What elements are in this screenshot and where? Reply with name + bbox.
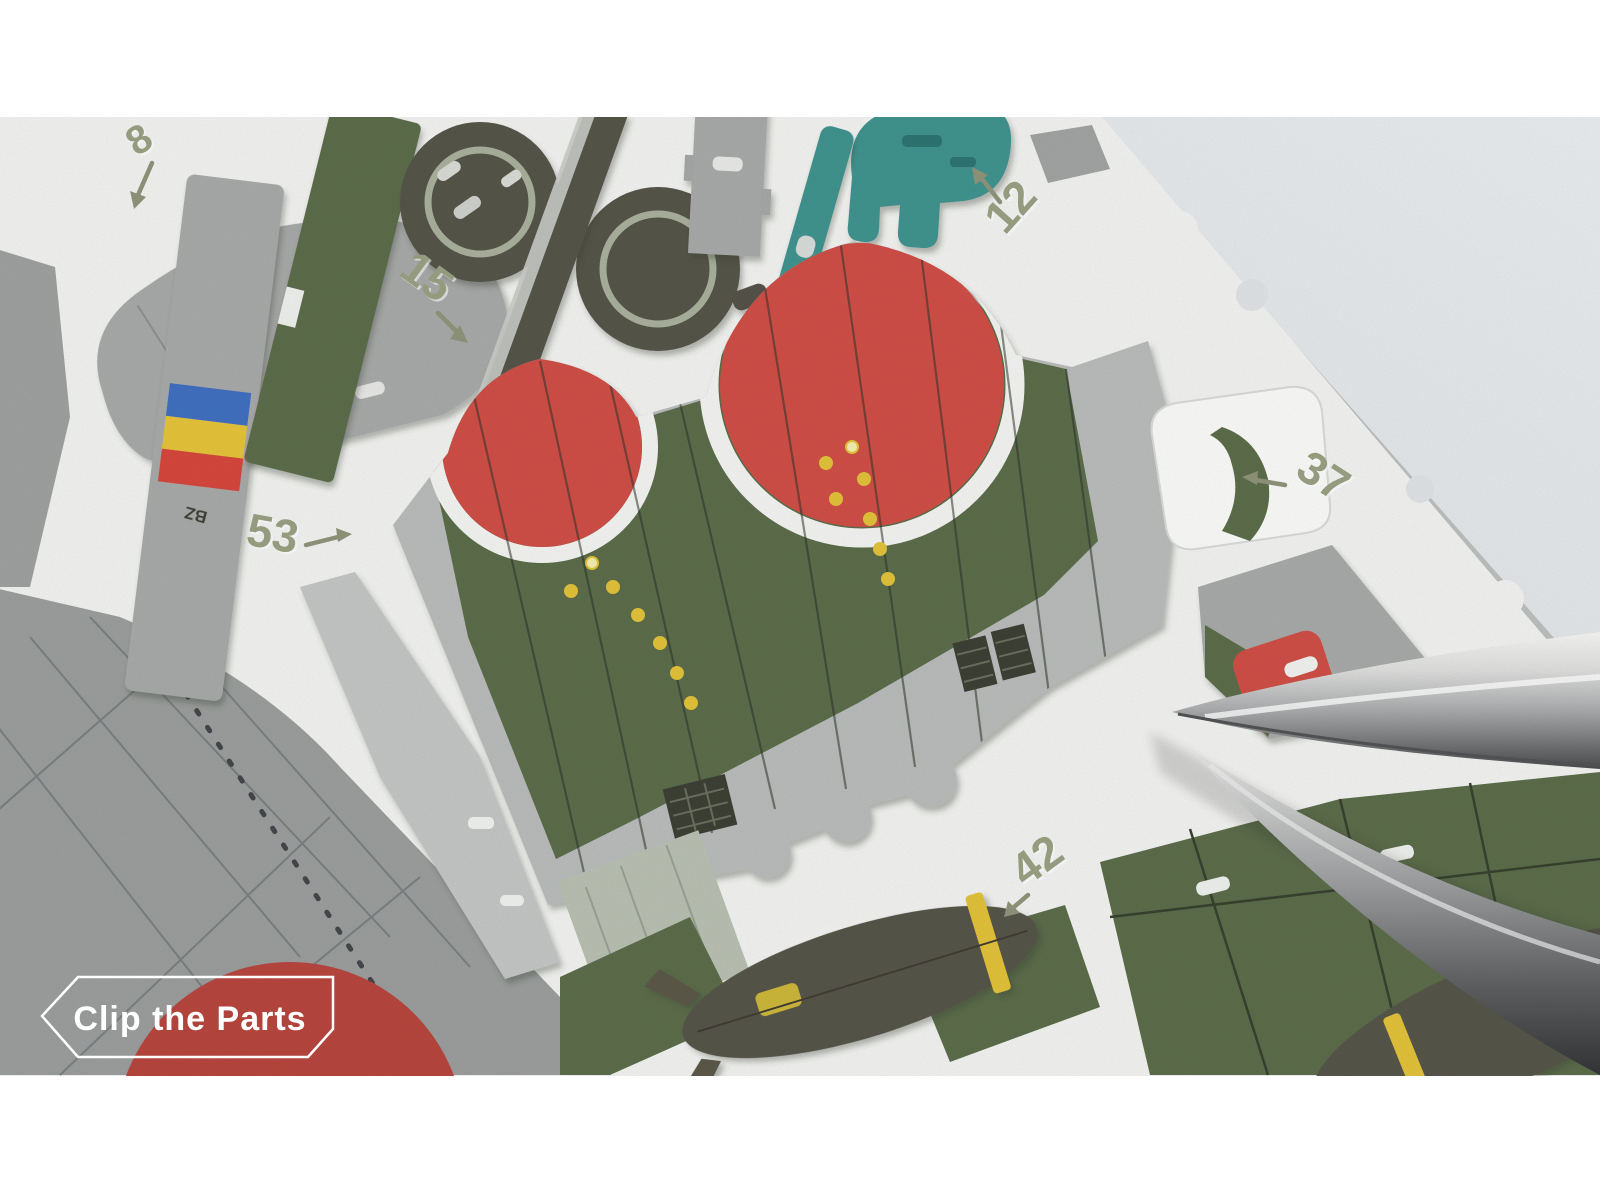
caption-label: Clip the Parts [73,1000,306,1038]
photo-svg: BZ [0,117,1600,1076]
page: BZ [0,0,1600,1200]
product-photo: BZ [0,117,1600,1076]
grain-overlay [0,117,1600,1076]
